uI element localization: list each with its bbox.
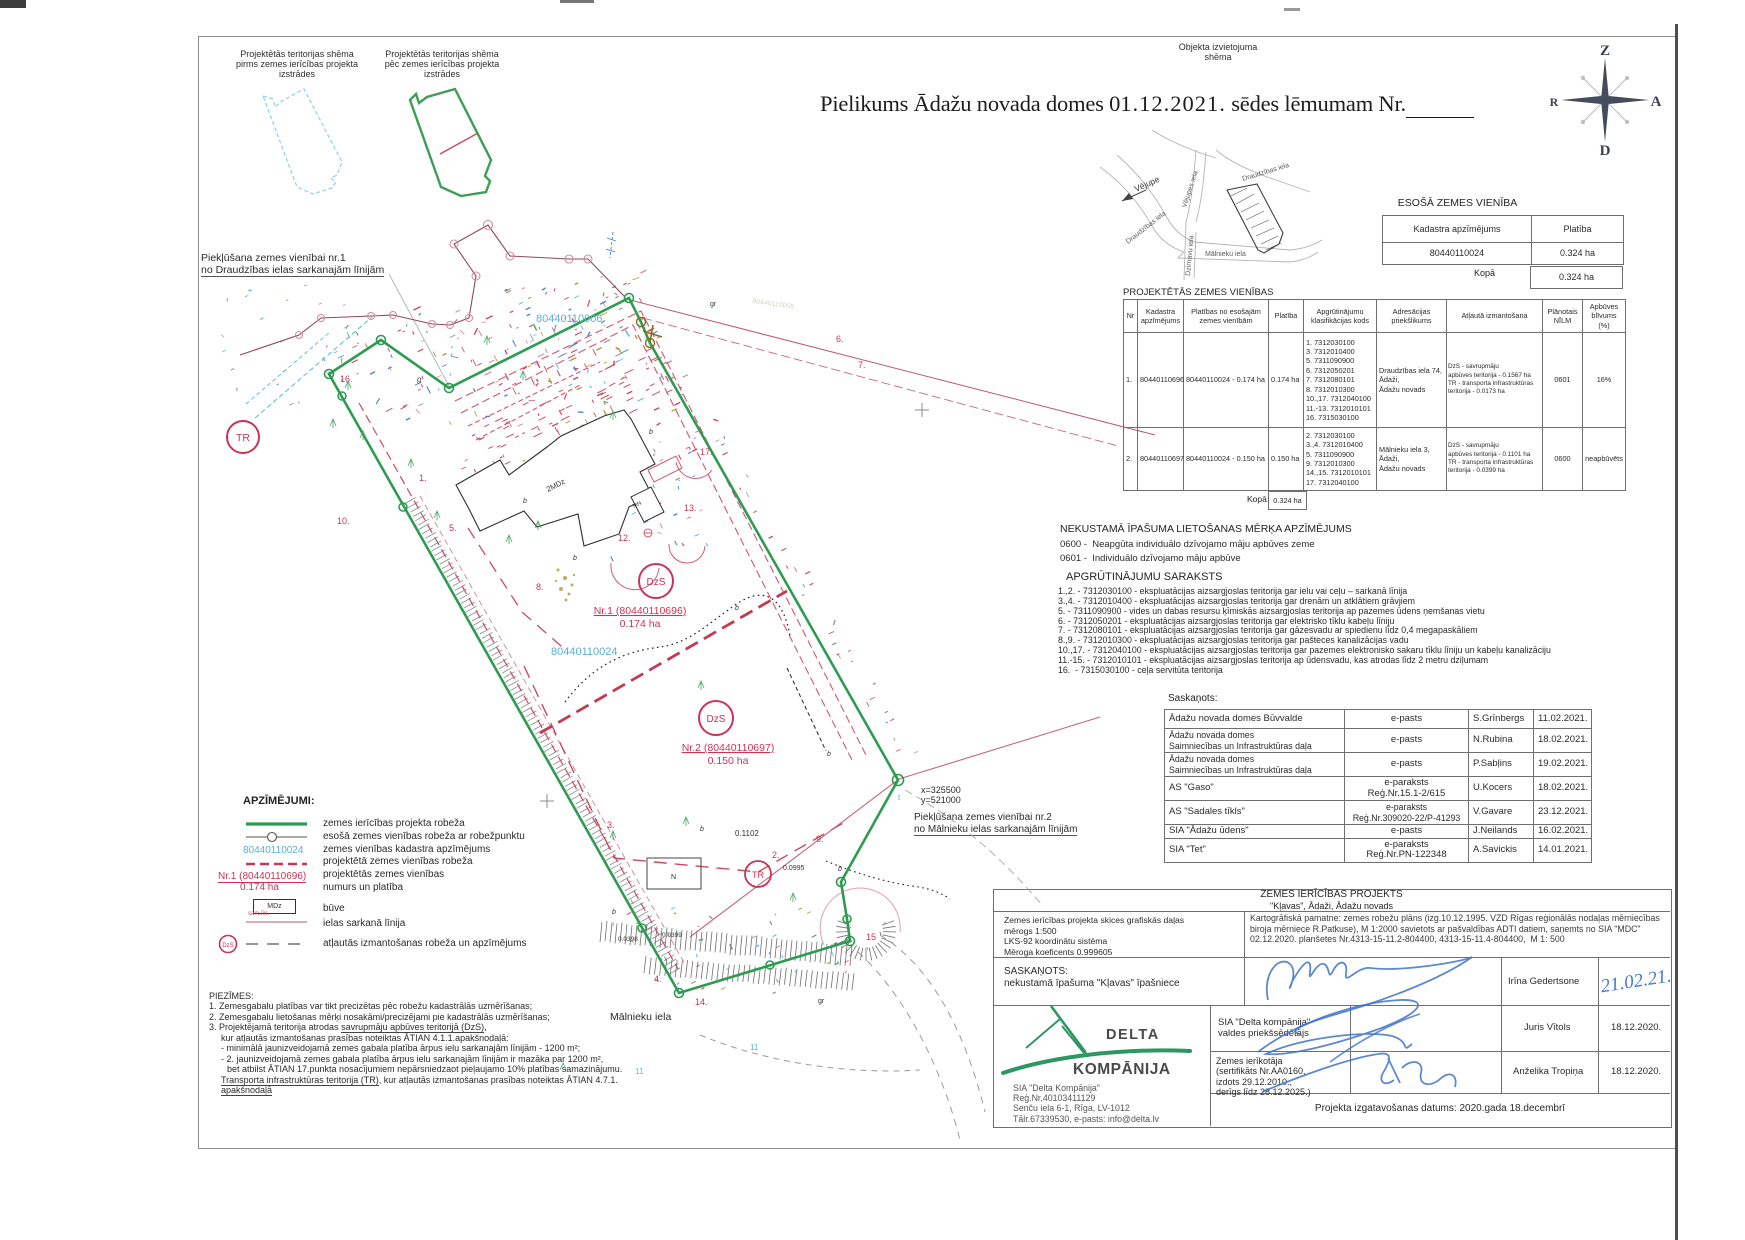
svg-text:80440110006: 80440110006: [536, 313, 602, 325]
svg-text:b: b: [612, 909, 616, 916]
svg-text:DzS: DzS: [222, 943, 233, 949]
svg-text:b: b: [573, 555, 577, 562]
svg-text:80440110024: 80440110024: [551, 646, 617, 658]
svg-text:9.: 9.: [816, 834, 824, 844]
svg-text:R: R: [1550, 95, 1559, 109]
svg-text:Nr.2 (80440110697): Nr.2 (80440110697): [682, 742, 775, 754]
svg-text:8.: 8.: [536, 582, 544, 592]
svg-text:Z: Z: [1600, 43, 1610, 59]
svg-text:2.: 2.: [772, 850, 780, 860]
svg-text:b: b: [827, 751, 831, 758]
svg-text:b: b: [838, 866, 842, 873]
svg-text:TR: TR: [752, 870, 764, 880]
svg-text:16.: 16.: [340, 374, 353, 384]
svg-text:17.: 17.: [700, 447, 713, 457]
svg-text:4.: 4.: [654, 974, 662, 984]
svg-text:D: D: [1600, 143, 1611, 159]
svg-text:0.0398: 0.0398: [618, 936, 638, 943]
svg-text:DzS: DzS: [707, 714, 726, 725]
svg-text:14.: 14.: [695, 997, 708, 1007]
svg-text:Mālnieku iela: Mālnieku iela: [1205, 251, 1246, 258]
svg-text:A: A: [1651, 94, 1662, 110]
svg-text:3.: 3.: [607, 820, 615, 830]
svg-text:Draudzības iela: Draudzības iela: [1125, 210, 1168, 246]
svg-text:t: t: [898, 793, 901, 802]
svg-text:0.174 ha: 0.174 ha: [620, 618, 661, 630]
svg-text:Nr.1 (80440110696): Nr.1 (80440110696): [594, 605, 687, 617]
svg-text:10.: 10.: [337, 516, 350, 526]
svg-text:0.1102: 0.1102: [735, 829, 759, 838]
svg-text:DzS: DzS: [647, 577, 666, 588]
svg-text:0.150 ha: 0.150 ha: [708, 755, 749, 767]
svg-text:5.: 5.: [449, 523, 457, 533]
svg-text:gr: gr: [710, 301, 717, 308]
svg-text:13.: 13.: [684, 503, 697, 513]
svg-text:N: N: [671, 874, 676, 881]
svg-text:Vējupe: Vējupe: [1133, 174, 1161, 194]
svg-text:0.0399: 0.0399: [662, 932, 682, 939]
svg-text:b: b: [735, 605, 739, 612]
svg-text:g: g: [417, 375, 422, 384]
svg-text:b: b: [523, 498, 527, 505]
svg-text:b: b: [649, 429, 653, 436]
svg-text:80440110005: 80440110005: [752, 298, 795, 311]
svg-text:TR: TR: [236, 432, 250, 444]
svg-text:15: 15: [866, 932, 876, 942]
svg-text:b: b: [700, 826, 704, 833]
svg-text:21.02.21.: 21.02.21.: [1599, 965, 1673, 997]
svg-text:6.: 6.: [836, 334, 844, 344]
svg-text:1.: 1.: [419, 473, 427, 483]
svg-text:11: 11: [750, 1043, 759, 1052]
svg-text:Draudzības iela: Draudzības iela: [1242, 162, 1291, 183]
svg-text:12.: 12.: [618, 533, 631, 543]
svg-text:11: 11: [635, 1067, 644, 1076]
svg-text:7.: 7.: [858, 360, 866, 370]
svg-text:0.0995: 0.0995: [783, 865, 805, 872]
svg-text:gr: gr: [818, 998, 825, 1005]
